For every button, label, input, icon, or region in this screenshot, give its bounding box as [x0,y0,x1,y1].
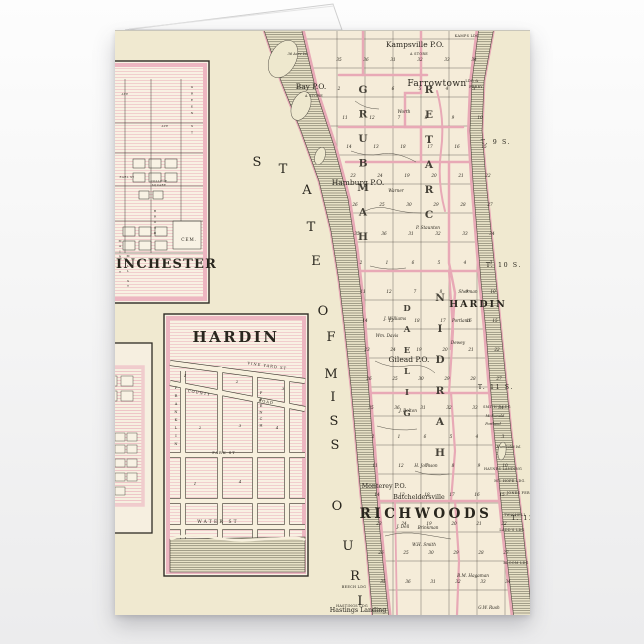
map-label: 6 [424,434,427,439]
map-label: T [279,162,288,177]
map-label: A STORE [304,94,323,98]
map-label: LDG & [465,79,478,83]
map-label: 36 [381,231,387,236]
map-label: R [175,394,178,398]
map-label: A [358,207,368,219]
map-label: 7 [398,115,401,120]
map-label: Kampsville P.O. [386,40,444,49]
map-label: 9 [478,463,481,468]
map-label: Farrowtown [407,79,466,89]
hardin-inset-river [170,537,305,572]
map-label: HARDIN [192,328,279,346]
map-label: 21 [467,347,473,352]
map-label: 29 [452,550,459,555]
map-label: I [330,390,335,405]
map-label: 18 [400,144,406,149]
map-label: P. Staunton [415,225,440,230]
map-label: E [260,404,263,408]
map-label: 20 [430,173,437,178]
map-label: S [253,155,262,170]
map-label: 1 [398,434,401,439]
map-label: N [259,411,262,415]
map-label: R [425,84,434,96]
map-label: 14 [362,318,368,323]
map-label: I [438,323,443,335]
map-label: E [404,346,411,356]
map-label: R [260,398,263,402]
map-label: HASTINGS LDG [336,604,368,608]
map-label: J. Williams [383,316,406,321]
map-label: H. Johnson [413,463,438,468]
map-label: Portland [451,318,470,323]
map-label: 23 [363,347,370,352]
map-label: E [191,105,193,109]
map-label: W.H. Smith [412,542,436,547]
map-label: 5 [450,434,453,439]
map-label: S [331,438,340,453]
map-label: 13 [373,144,379,149]
map-label: 33 [480,579,486,584]
map-label: S [119,265,121,269]
map-label: E [425,109,433,121]
map-label: 18 [414,318,420,323]
map-label: 3 [282,386,285,391]
map-label: T. 9 S. [481,139,512,146]
map-label: 22 [500,521,507,526]
map-label: 29 [443,376,450,381]
map-label: 2 [371,434,375,439]
map-label: 4 [463,260,467,265]
map-label: 9 [452,115,455,120]
map-label: AVE [121,92,129,96]
map-label: Bay P.O. [296,82,327,91]
map-label: 19 [416,347,422,352]
map-label: INCHESTER [116,257,217,272]
map-label: 4 [238,479,242,484]
map-label: H [259,424,262,428]
map-label: B.M. Hagaman [456,573,489,578]
map-label: M [324,367,337,382]
map-label: 27 [502,550,509,555]
map-label: HAYNES LANDING [484,467,522,471]
hardin-inset [164,314,308,576]
map-label: H [358,231,368,243]
map-label: 11 [372,463,377,468]
map-label: 11 [342,115,347,120]
map-label: 36 Acre Isl. [288,52,309,56]
map-label: EARL ST [120,175,135,179]
map-label: Portland [484,422,501,426]
map-label: 12 [386,289,392,294]
map-label: 1 [194,481,197,486]
map-label: 25 [402,550,409,555]
map-label: 31 [390,57,395,62]
map-label: 12 [398,463,404,468]
map-label: Monterey P.O. [362,483,407,490]
map-label: M [118,239,121,243]
map-label: 28 [459,202,466,207]
map-label: 14 [374,492,380,497]
map-label: KAMPS LDG [455,34,479,38]
map-label: 30 [406,202,412,207]
map-label: 2 [337,86,341,91]
map-label: 12 [369,115,375,120]
map-label: A STORE [409,52,428,56]
map-label: R [436,385,445,397]
map-label: 27 [486,202,493,207]
map-label: U [358,133,367,145]
map-label: 35 [336,57,342,62]
map-label: 21 [457,173,463,178]
map-label: 32 [435,231,441,236]
map-label: 32 [455,579,461,584]
map-label: McDonald [485,414,505,418]
map-label: S [127,279,129,283]
map-label: J. Dell [396,524,410,529]
map-label: 1 [184,373,187,378]
greeting-card-front[interactable]: 3536313233342165431112789101413181716152… [115,30,530,615]
map-label: CEM. [181,238,196,243]
map-label: 31 [408,231,413,236]
map-label: 33 [462,231,468,236]
map-label: M [126,254,129,258]
map-label: Batcheldersville [393,494,445,501]
map-label: 22 [484,173,491,178]
map-label: E [311,254,321,269]
map-label: Brinkman [417,525,439,530]
map-label: 6 [412,260,415,265]
map-label: 34 [471,57,477,62]
map-label: 11 [360,289,365,294]
map-label: 36 [363,57,369,62]
map-label: D [435,354,444,366]
map-label: TWICHELL [504,513,526,517]
map-label: 16 [454,144,460,149]
map-label: 2 [359,260,363,265]
map-label: 6 [392,86,395,91]
map-label: 25 [378,202,385,207]
map-label: 4 [275,425,279,430]
map-label: 32 [446,405,452,410]
map-label: A [403,325,411,335]
map-label: B [359,158,368,170]
map-label: L [127,269,129,273]
map-label: N [119,255,122,259]
map-label: T [191,131,193,135]
map-label: 26 [365,376,372,381]
map-label: 15 [492,318,498,323]
map-label: 10 [477,115,483,120]
map-label: 2 [235,379,239,384]
map-label: 33 [472,405,478,410]
map-label: 8 [452,463,455,468]
map-label: HARDIN [449,299,507,310]
map-label: 4 [475,434,479,439]
map-label: F [326,330,335,345]
map-label: R [350,569,361,584]
map-label: R [359,109,368,121]
map-label: 26 [351,202,358,207]
map-label: 20 [441,347,448,352]
map-label: BLOOM LDG [503,561,528,565]
map-label: 34 [489,231,495,236]
map-label: Warner [388,188,405,193]
map-label: A [174,402,178,406]
map-label: SQUARE [152,183,167,187]
map-label: R [425,184,434,196]
clipped-inset [115,343,152,533]
map-label: 24 [389,347,396,352]
map-label: T [425,134,433,146]
map-label: AVE [161,124,169,128]
map-label: 25 [391,376,398,381]
map-label: BEECH LDG [342,585,366,589]
map-label: O [318,304,329,319]
map-label: M [357,182,369,194]
map-label: Dewey [450,340,466,345]
map-label: 17 [449,492,455,497]
map-label: N [174,410,177,414]
map-label: JONES FER. [506,491,530,495]
map-label: 5 [438,260,441,265]
map-label: Sherman [458,289,478,294]
map-label: 35 [368,405,374,410]
map-label: G [359,84,368,96]
map-label: T [127,284,129,288]
map-label: D [403,304,411,314]
map-label: SMITH'S LDG [483,405,511,409]
map-label: PARK ST [212,451,236,455]
map-label: 3 [239,423,242,428]
map-label: 19 [404,173,410,178]
map-label: 28 [477,550,484,555]
map-label: Humboldt Isl. [496,445,522,449]
map-label: Wm. Davis [376,333,399,338]
map-label: 33 [444,57,450,62]
product-mockup-stage: 3536313233342165431112789101413181716152… [0,0,644,644]
map-label: U [343,539,354,554]
card-back-panel [125,4,342,30]
map-label: 30 [428,550,434,555]
map-label: RICHWOODS [360,506,493,522]
map-label: 34 [505,579,511,584]
map-label: Worth [398,109,411,114]
map-label: 27 [495,376,502,381]
map-label: N [191,111,194,115]
map-label: O [332,499,343,514]
map-label: 35 [380,579,386,584]
map-label: H [435,447,445,459]
map-label: 10 [490,289,496,294]
map-label: T [119,270,121,274]
map-label: 31 [420,405,425,410]
map-label: E [191,98,193,102]
map-label: N [174,442,177,446]
map-label: 14 [346,144,352,149]
map-label: C [425,209,433,221]
card-fold-edge [129,6,334,29]
map-label: S [330,414,339,429]
map-label: 36 [405,579,411,584]
map-label: T [307,220,316,235]
map-label: G.W. Rush [478,605,500,610]
map-label: 22 [493,347,500,352]
map-label: L [404,367,410,377]
map-label: T. 10 S. [486,262,522,269]
county-atlas-map: 3536313233342165431112789101413181716152… [115,31,530,615]
map-label: 30 [418,376,424,381]
map-label: 31 [430,579,435,584]
map-label: MT. HOPE LDG. [494,479,526,483]
map-label: A [301,183,312,198]
map-label: Gilead P.O. [389,355,430,364]
map-label: LADD'S LDG [499,528,524,532]
map-label: A [424,159,434,171]
map-label: 32 [417,57,423,62]
map-label: 15 [499,492,505,497]
map-label: 7 [414,289,417,294]
map-label: 29 [432,202,439,207]
map-label: G [403,409,410,419]
map-label: L [127,264,129,268]
map-label: 2 [198,425,202,430]
map-label: S [191,124,193,128]
map-label: I [405,388,409,398]
map-label: FERRY [469,85,483,89]
map-label: 16 [474,492,480,497]
map-label: K [175,418,178,422]
map-label: N [435,292,445,304]
map-label: A [435,416,445,428]
map-label: T. 11 S. [478,384,514,391]
map-label: 3 [502,434,505,439]
map-label: WATER ST [197,520,239,525]
map-label: C [260,417,263,421]
map-label: 28 [469,376,476,381]
map-label: I [357,594,362,609]
map-label: 26 [377,550,384,555]
map-label: 1 [386,260,389,265]
